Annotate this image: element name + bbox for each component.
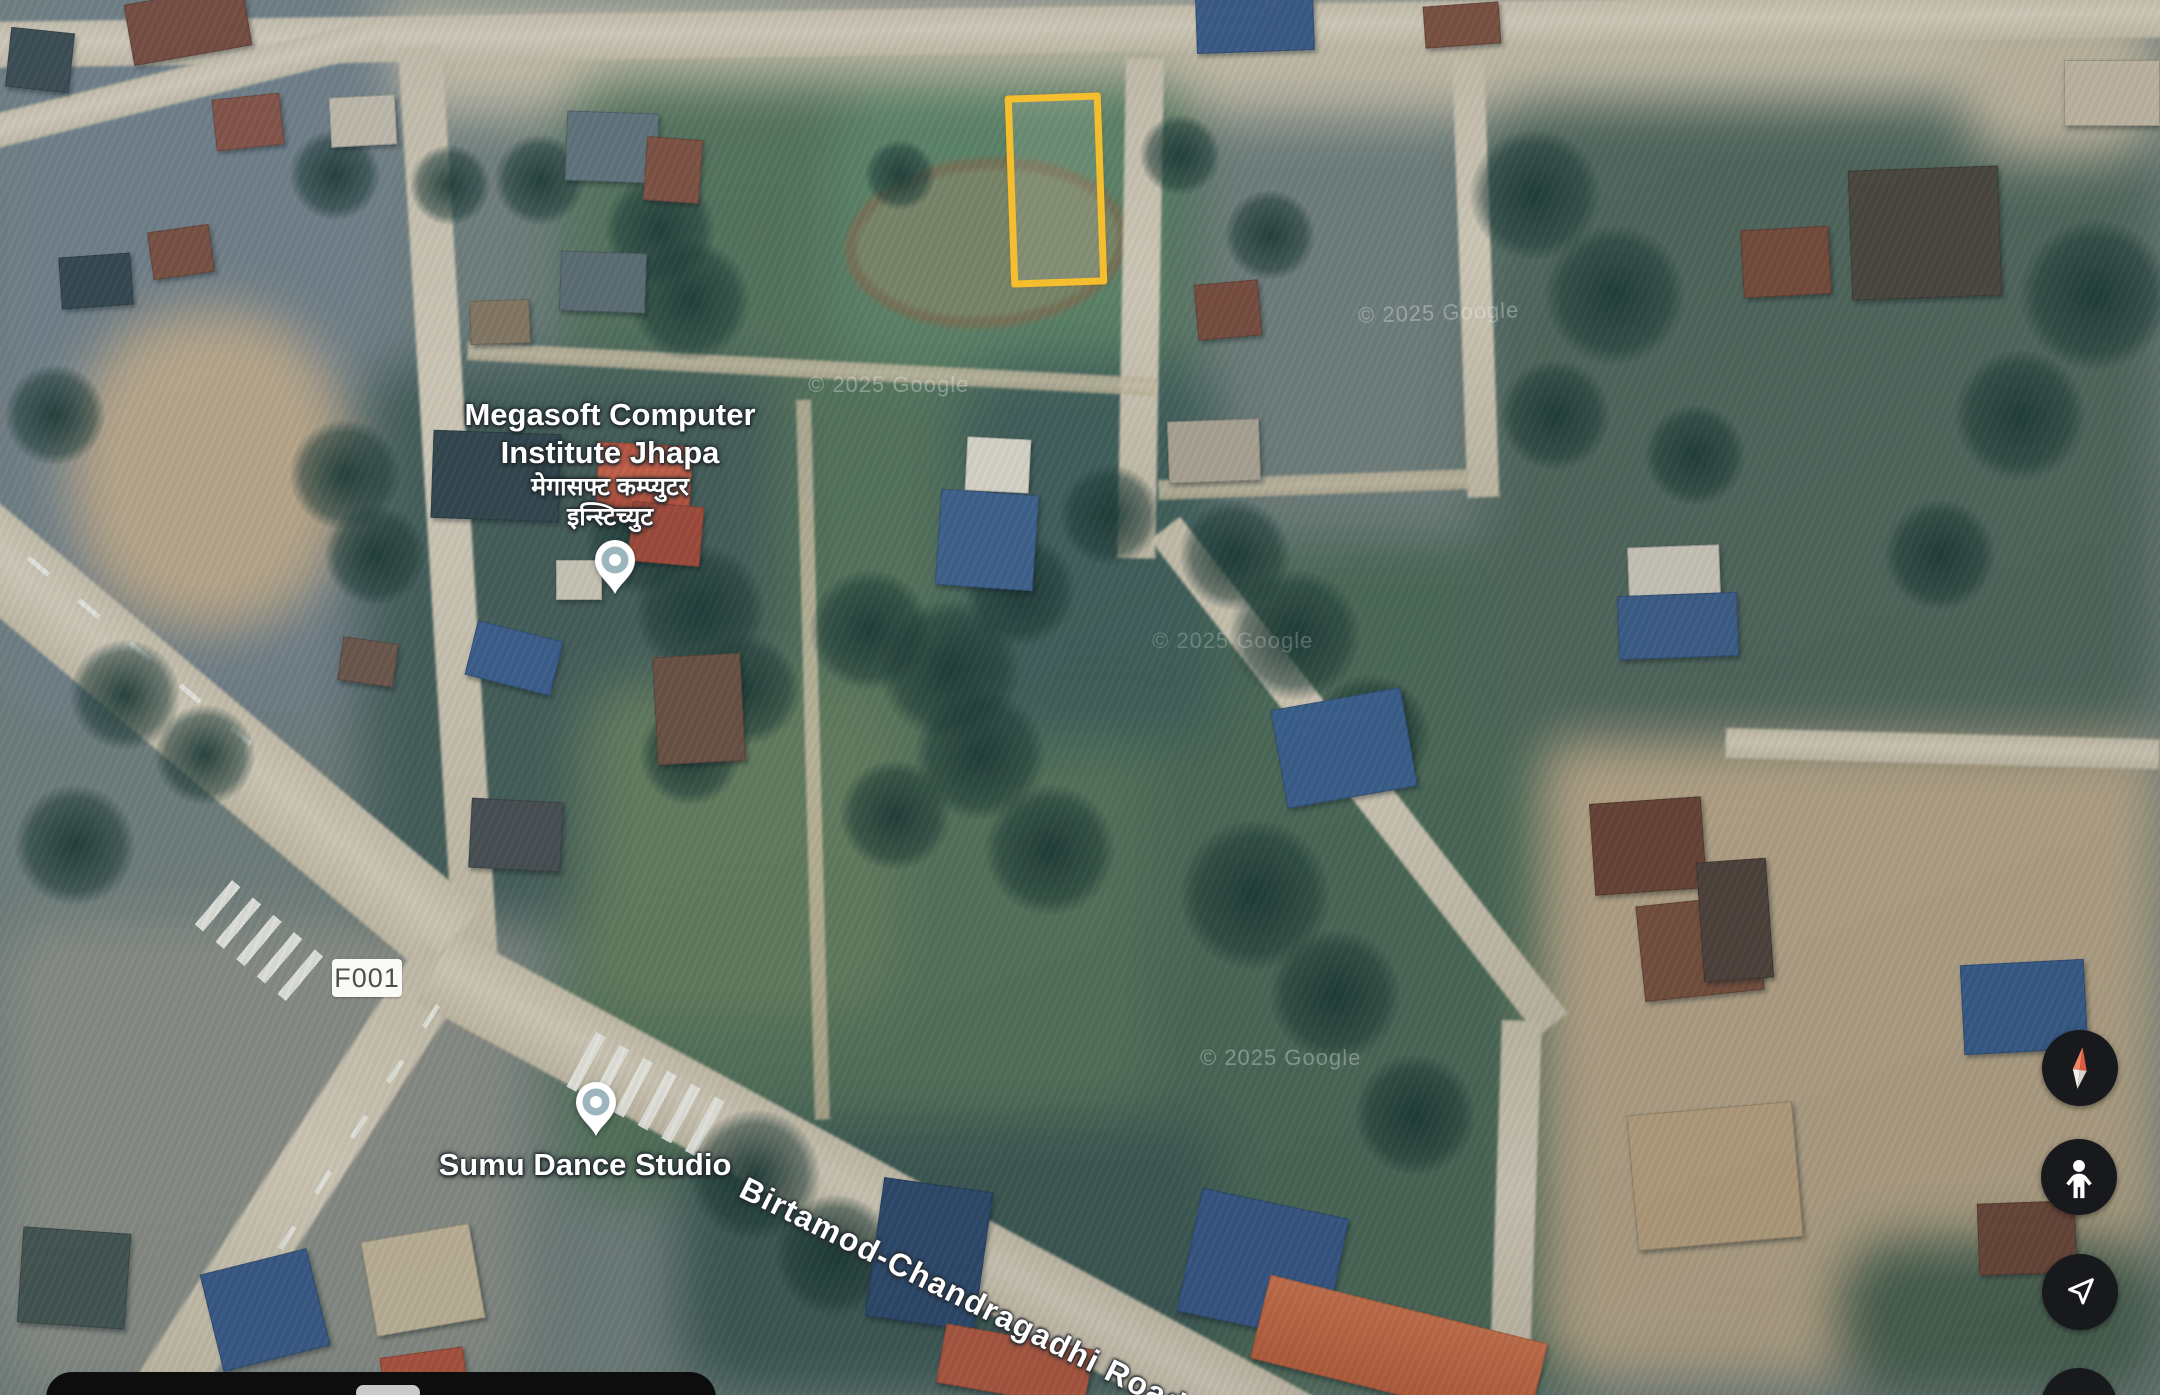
place-pin-icon[interactable]	[593, 538, 637, 596]
pegman-button[interactable]	[2041, 1139, 2117, 1215]
poi-megasoft-native-line2: इन्स्टिच्युट	[400, 502, 820, 533]
poi-megasoft-name-line2: Institute Jhapa	[400, 434, 820, 472]
bottom-sheet[interactable]	[46, 1372, 716, 1395]
poi-label-sumu[interactable]: Sumu Dance Studio	[385, 1146, 785, 1184]
satellite-map-viewport[interactable]: © 2025 Google © 2025 Google © 2025 Googl…	[0, 0, 2160, 1395]
my-location-button[interactable]	[2042, 1254, 2118, 1330]
poi-megasoft-name-line1: Megasoft Computer	[400, 396, 820, 434]
route-shield-f001: F001	[332, 959, 402, 997]
place-pin-icon[interactable]	[574, 1080, 618, 1138]
pegman-icon	[2056, 1154, 2102, 1200]
google-watermark: © 2025 Google	[808, 372, 969, 398]
compass-icon	[2056, 1044, 2104, 1092]
poi-megasoft-native-line1: मेगासफ्ट कम्प्युटर	[400, 472, 820, 503]
drag-handle[interactable]	[356, 1385, 420, 1395]
google-watermark: © 2025 Google	[1152, 628, 1313, 654]
toggle-2d-label: 2D	[2061, 1390, 2097, 1395]
poi-label-megasoft[interactable]: Megasoft Computer Institute Jhapa मेगासफ…	[400, 396, 820, 533]
google-watermark: © 2025 Google	[1200, 1045, 1361, 1071]
compass-button[interactable]	[2042, 1030, 2118, 1106]
navigate-arrow-icon	[2057, 1269, 2103, 1315]
highlighted-parcel[interactable]	[1005, 92, 1108, 287]
